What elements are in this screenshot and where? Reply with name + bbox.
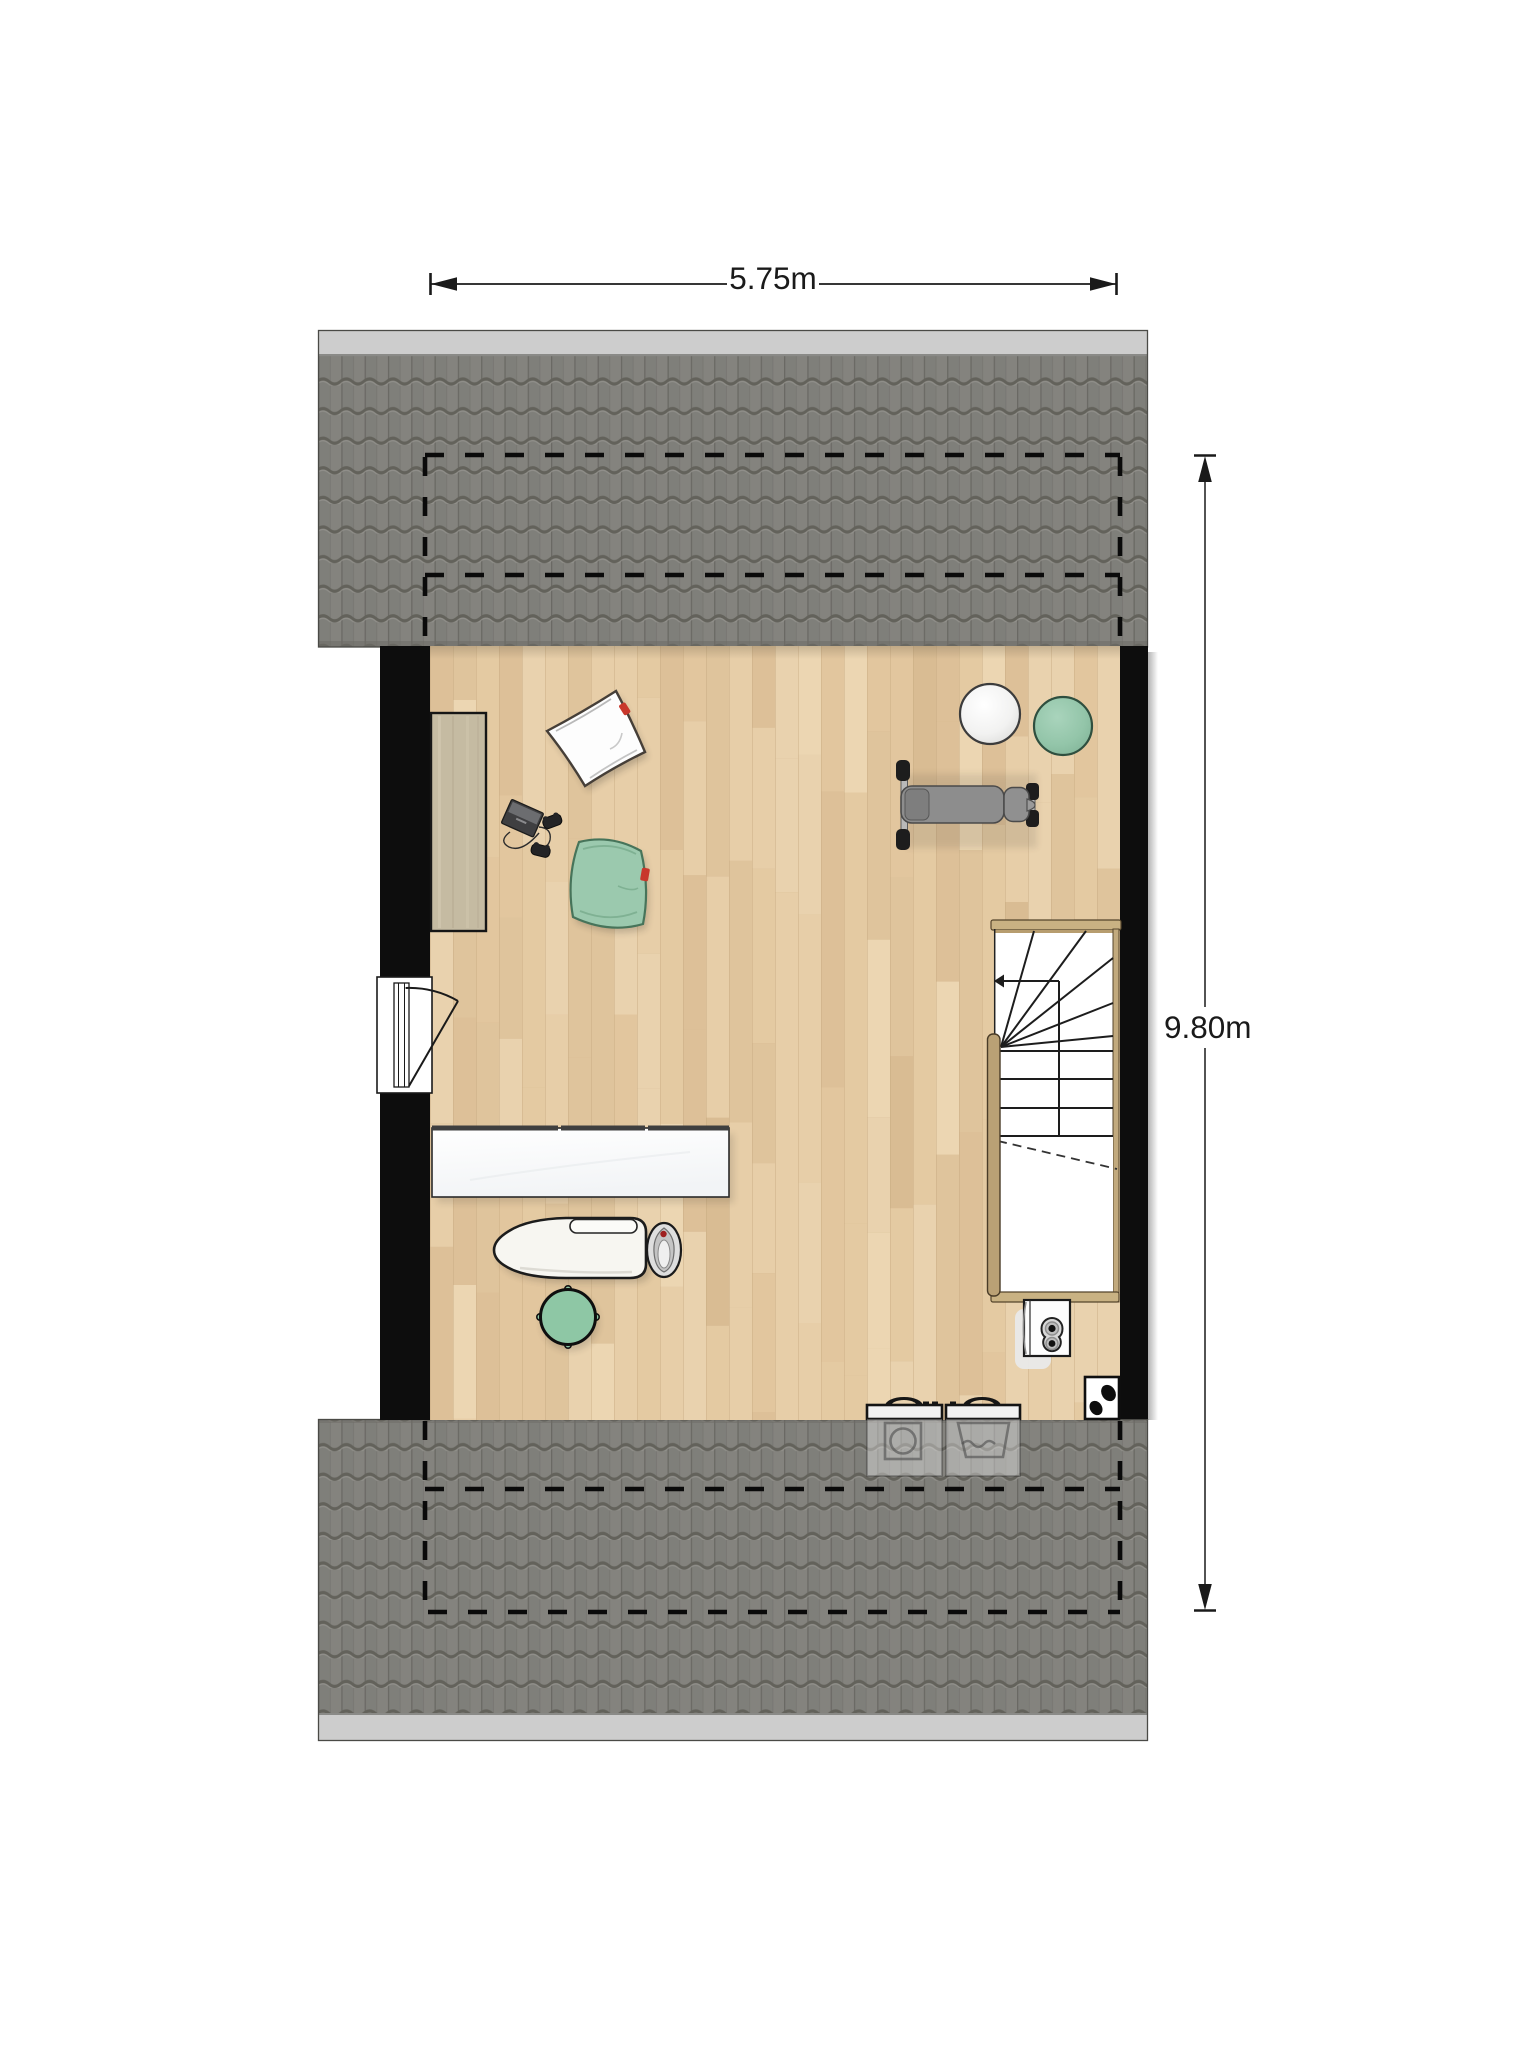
svg-text:5.75m: 5.75m [729,260,817,296]
svg-text:9.80m: 9.80m [1164,1009,1252,1045]
